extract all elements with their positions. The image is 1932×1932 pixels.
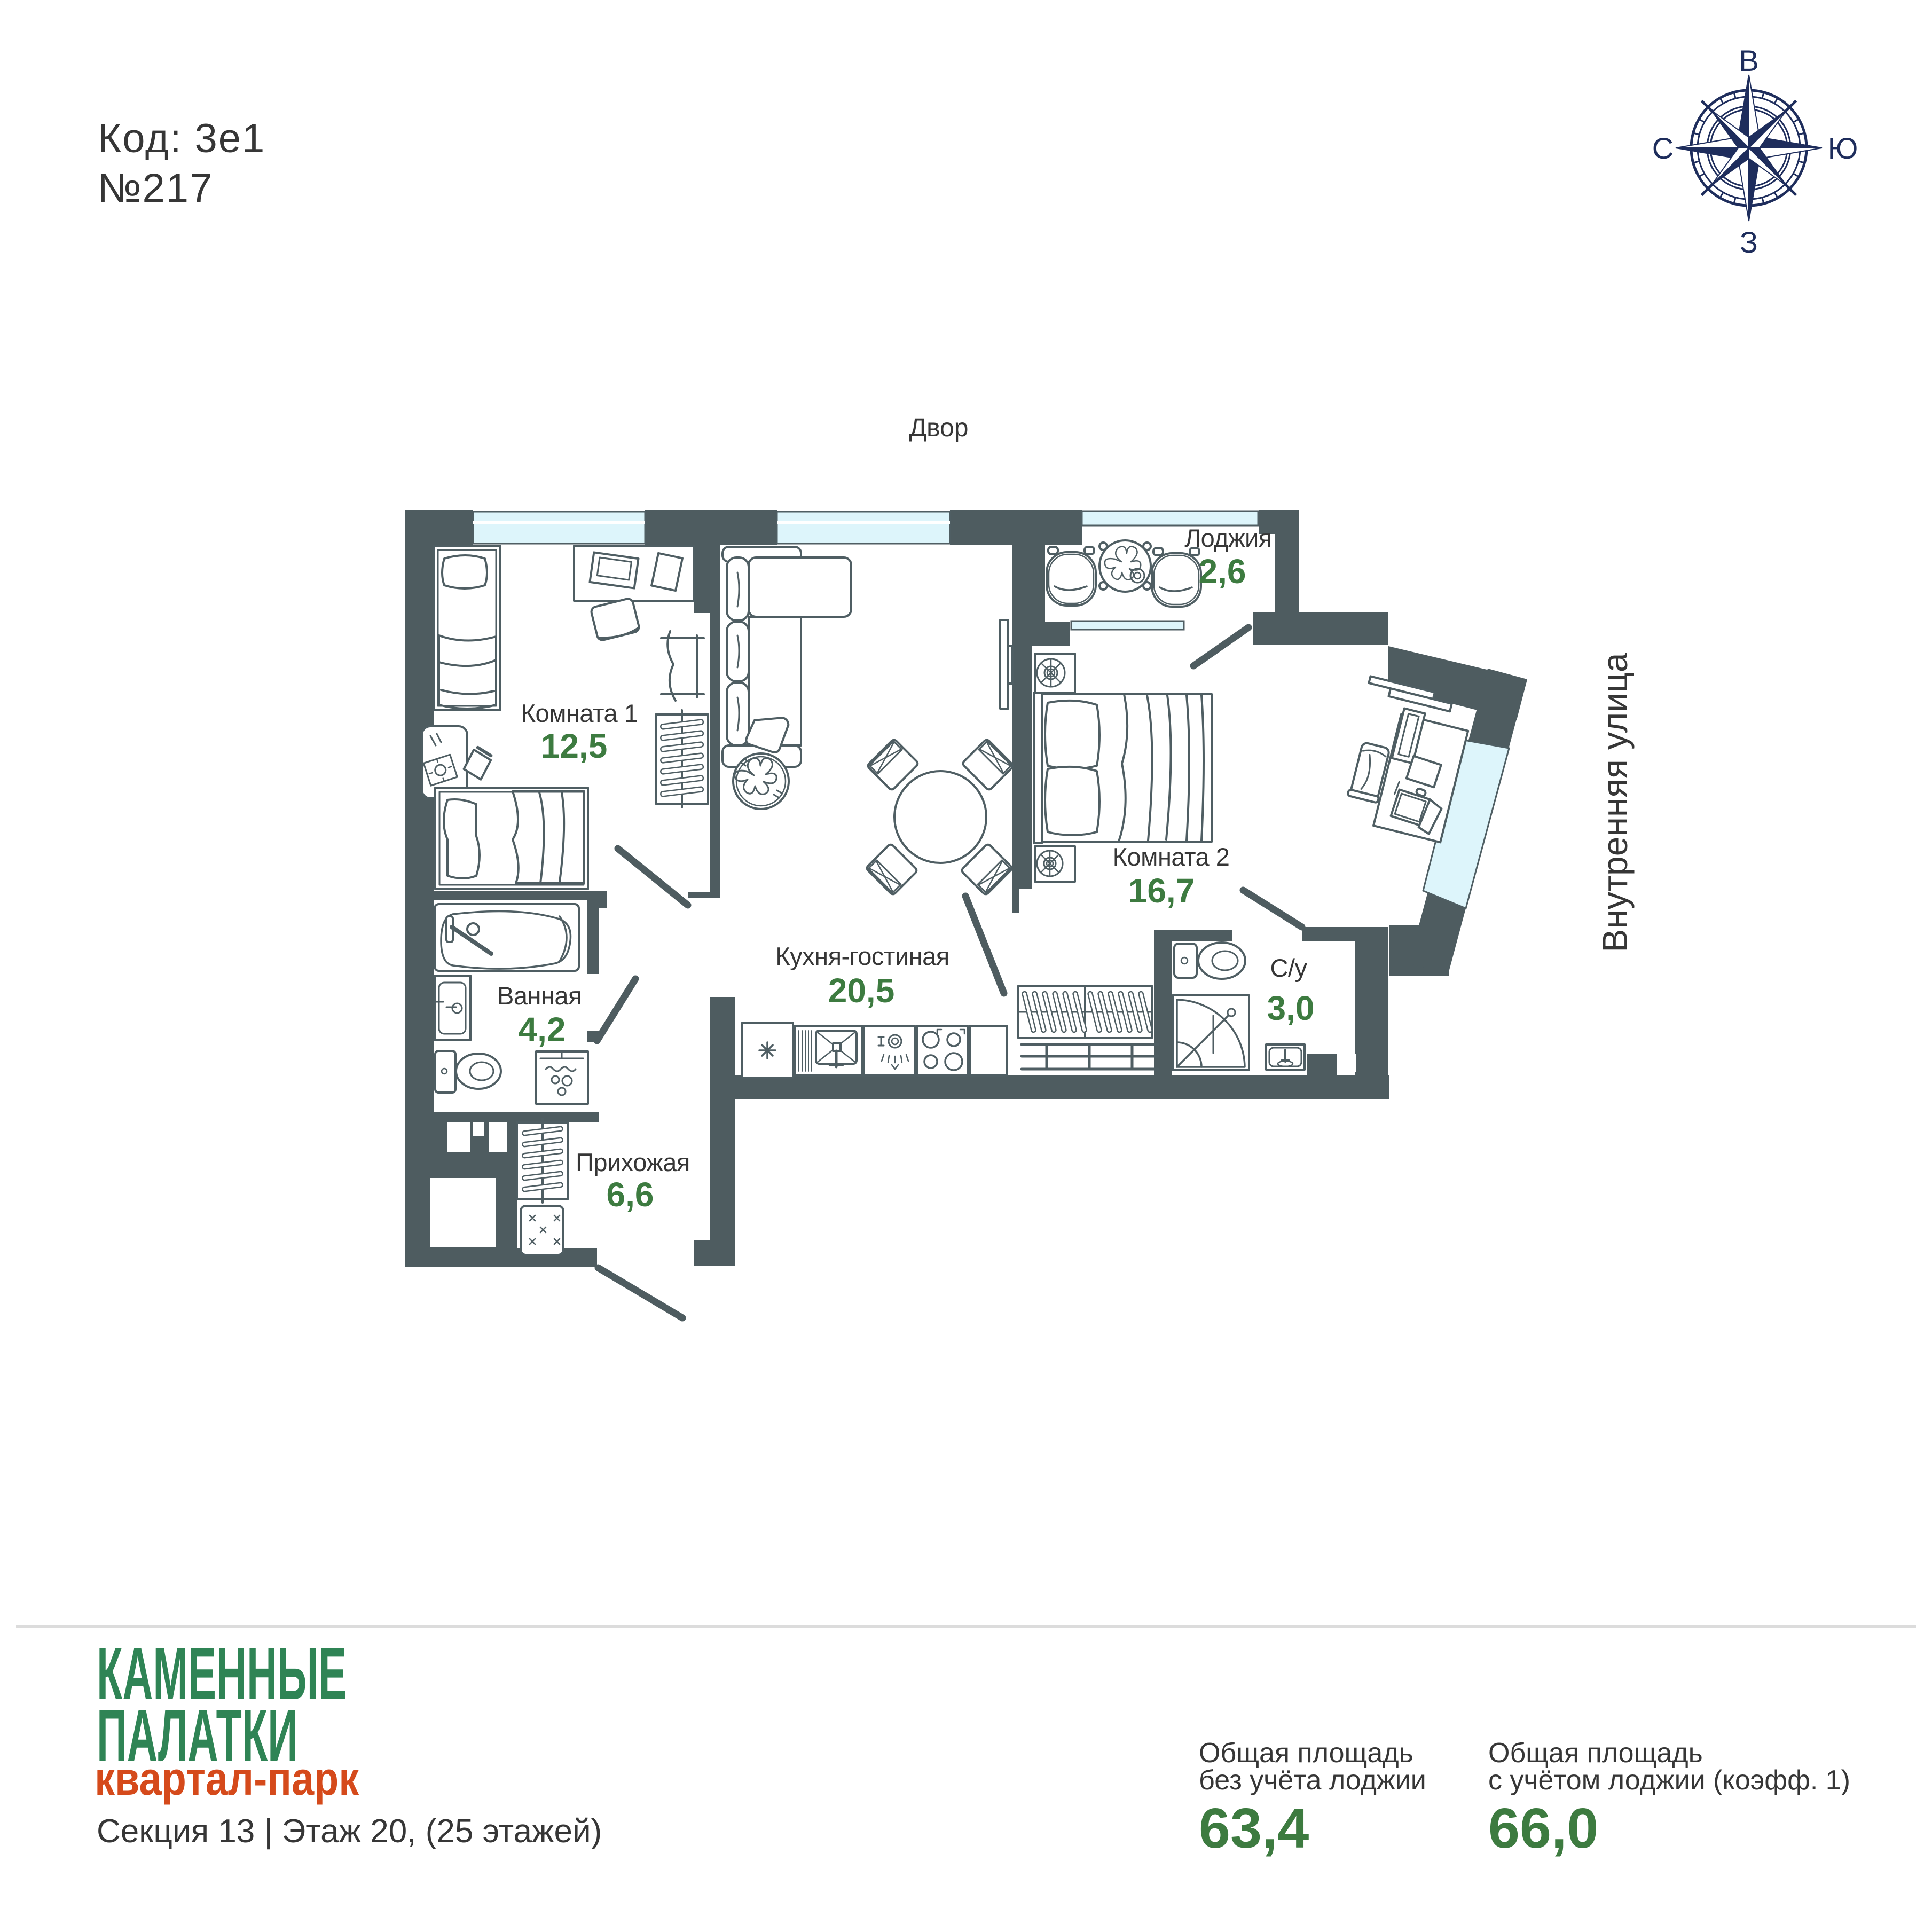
svg-text:66,0: 66,0 — [1488, 1797, 1598, 1860]
svg-text:С/у: С/у — [1270, 954, 1308, 982]
svg-text:6,6: 6,6 — [607, 1175, 654, 1214]
svg-text:3,0: 3,0 — [1267, 989, 1315, 1027]
svg-text:№217: №217 — [98, 166, 213, 211]
svg-text:Кухня-гостиная: Кухня-гостиная — [775, 942, 949, 970]
svg-text:Прихожая: Прихожая — [576, 1148, 690, 1176]
svg-text:Ю: Ю — [1828, 131, 1858, 165]
svg-text:с учётом лоджии (коэфф. 1): с учётом лоджии (коэфф. 1) — [1488, 1765, 1850, 1796]
svg-text:квартал-парк: квартал-парк — [95, 1753, 359, 1805]
svg-text:З: З — [1740, 225, 1758, 259]
svg-text:Внутренняя улица: Внутренняя улица — [1595, 653, 1635, 953]
svg-text:16,7: 16,7 — [1128, 871, 1195, 910]
svg-text:Комната 1: Комната 1 — [521, 699, 638, 727]
svg-text:Общая площадь: Общая площадь — [1199, 1738, 1413, 1769]
svg-text:20,5: 20,5 — [828, 971, 895, 1010]
svg-text:Комната 2: Комната 2 — [1113, 843, 1230, 871]
svg-text:Секция 13 | Этаж 20, (25 этаже: Секция 13 | Этаж 20, (25 этажей) — [97, 1813, 602, 1850]
svg-text:С: С — [1652, 131, 1674, 165]
svg-text:без учёта лоджии: без учёта лоджии — [1199, 1765, 1426, 1796]
svg-text:12,5: 12,5 — [541, 727, 608, 765]
svg-text:Общая площадь: Общая площадь — [1488, 1738, 1703, 1769]
svg-text:Код: 3е1: Код: 3е1 — [98, 116, 265, 161]
svg-text:63,4: 63,4 — [1199, 1797, 1309, 1860]
svg-text:Ванная: Ванная — [497, 981, 582, 1010]
svg-text:Лоджия: Лоджия — [1184, 524, 1272, 552]
svg-text:Двор: Двор — [909, 414, 969, 442]
svg-text:4,2: 4,2 — [519, 1010, 566, 1049]
svg-text:2,6: 2,6 — [1199, 552, 1246, 591]
svg-text:В: В — [1739, 44, 1758, 77]
